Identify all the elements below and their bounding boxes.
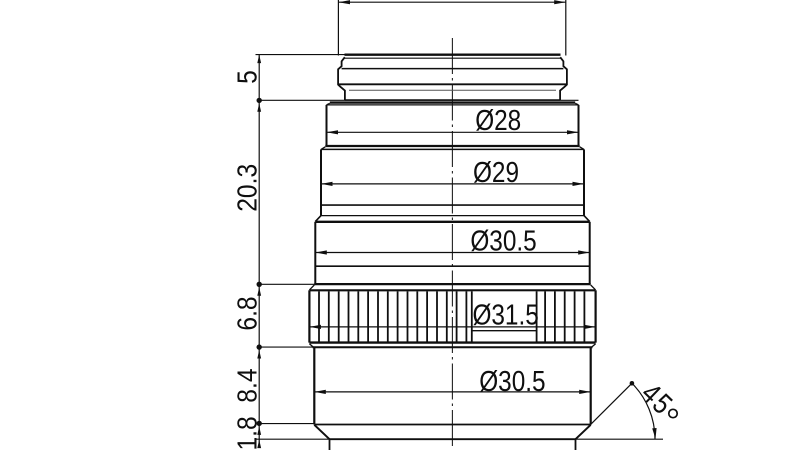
- svg-text:Ø29: Ø29: [473, 156, 519, 188]
- svg-text:20.3: 20.3: [231, 164, 263, 212]
- svg-text:6.8: 6.8: [231, 296, 263, 330]
- svg-text:5: 5: [231, 70, 263, 84]
- svg-text:45: 45: [635, 377, 680, 422]
- svg-text:8.4: 8.4: [231, 368, 263, 402]
- svg-text:Ø30.5: Ø30.5: [470, 224, 536, 256]
- svg-text:Ø31.5: Ø31.5: [472, 298, 538, 330]
- svg-text:1.8: 1.8: [231, 416, 263, 450]
- svg-text:Ø30.5: Ø30.5: [479, 365, 545, 397]
- svg-text:Ø28: Ø28: [475, 104, 521, 136]
